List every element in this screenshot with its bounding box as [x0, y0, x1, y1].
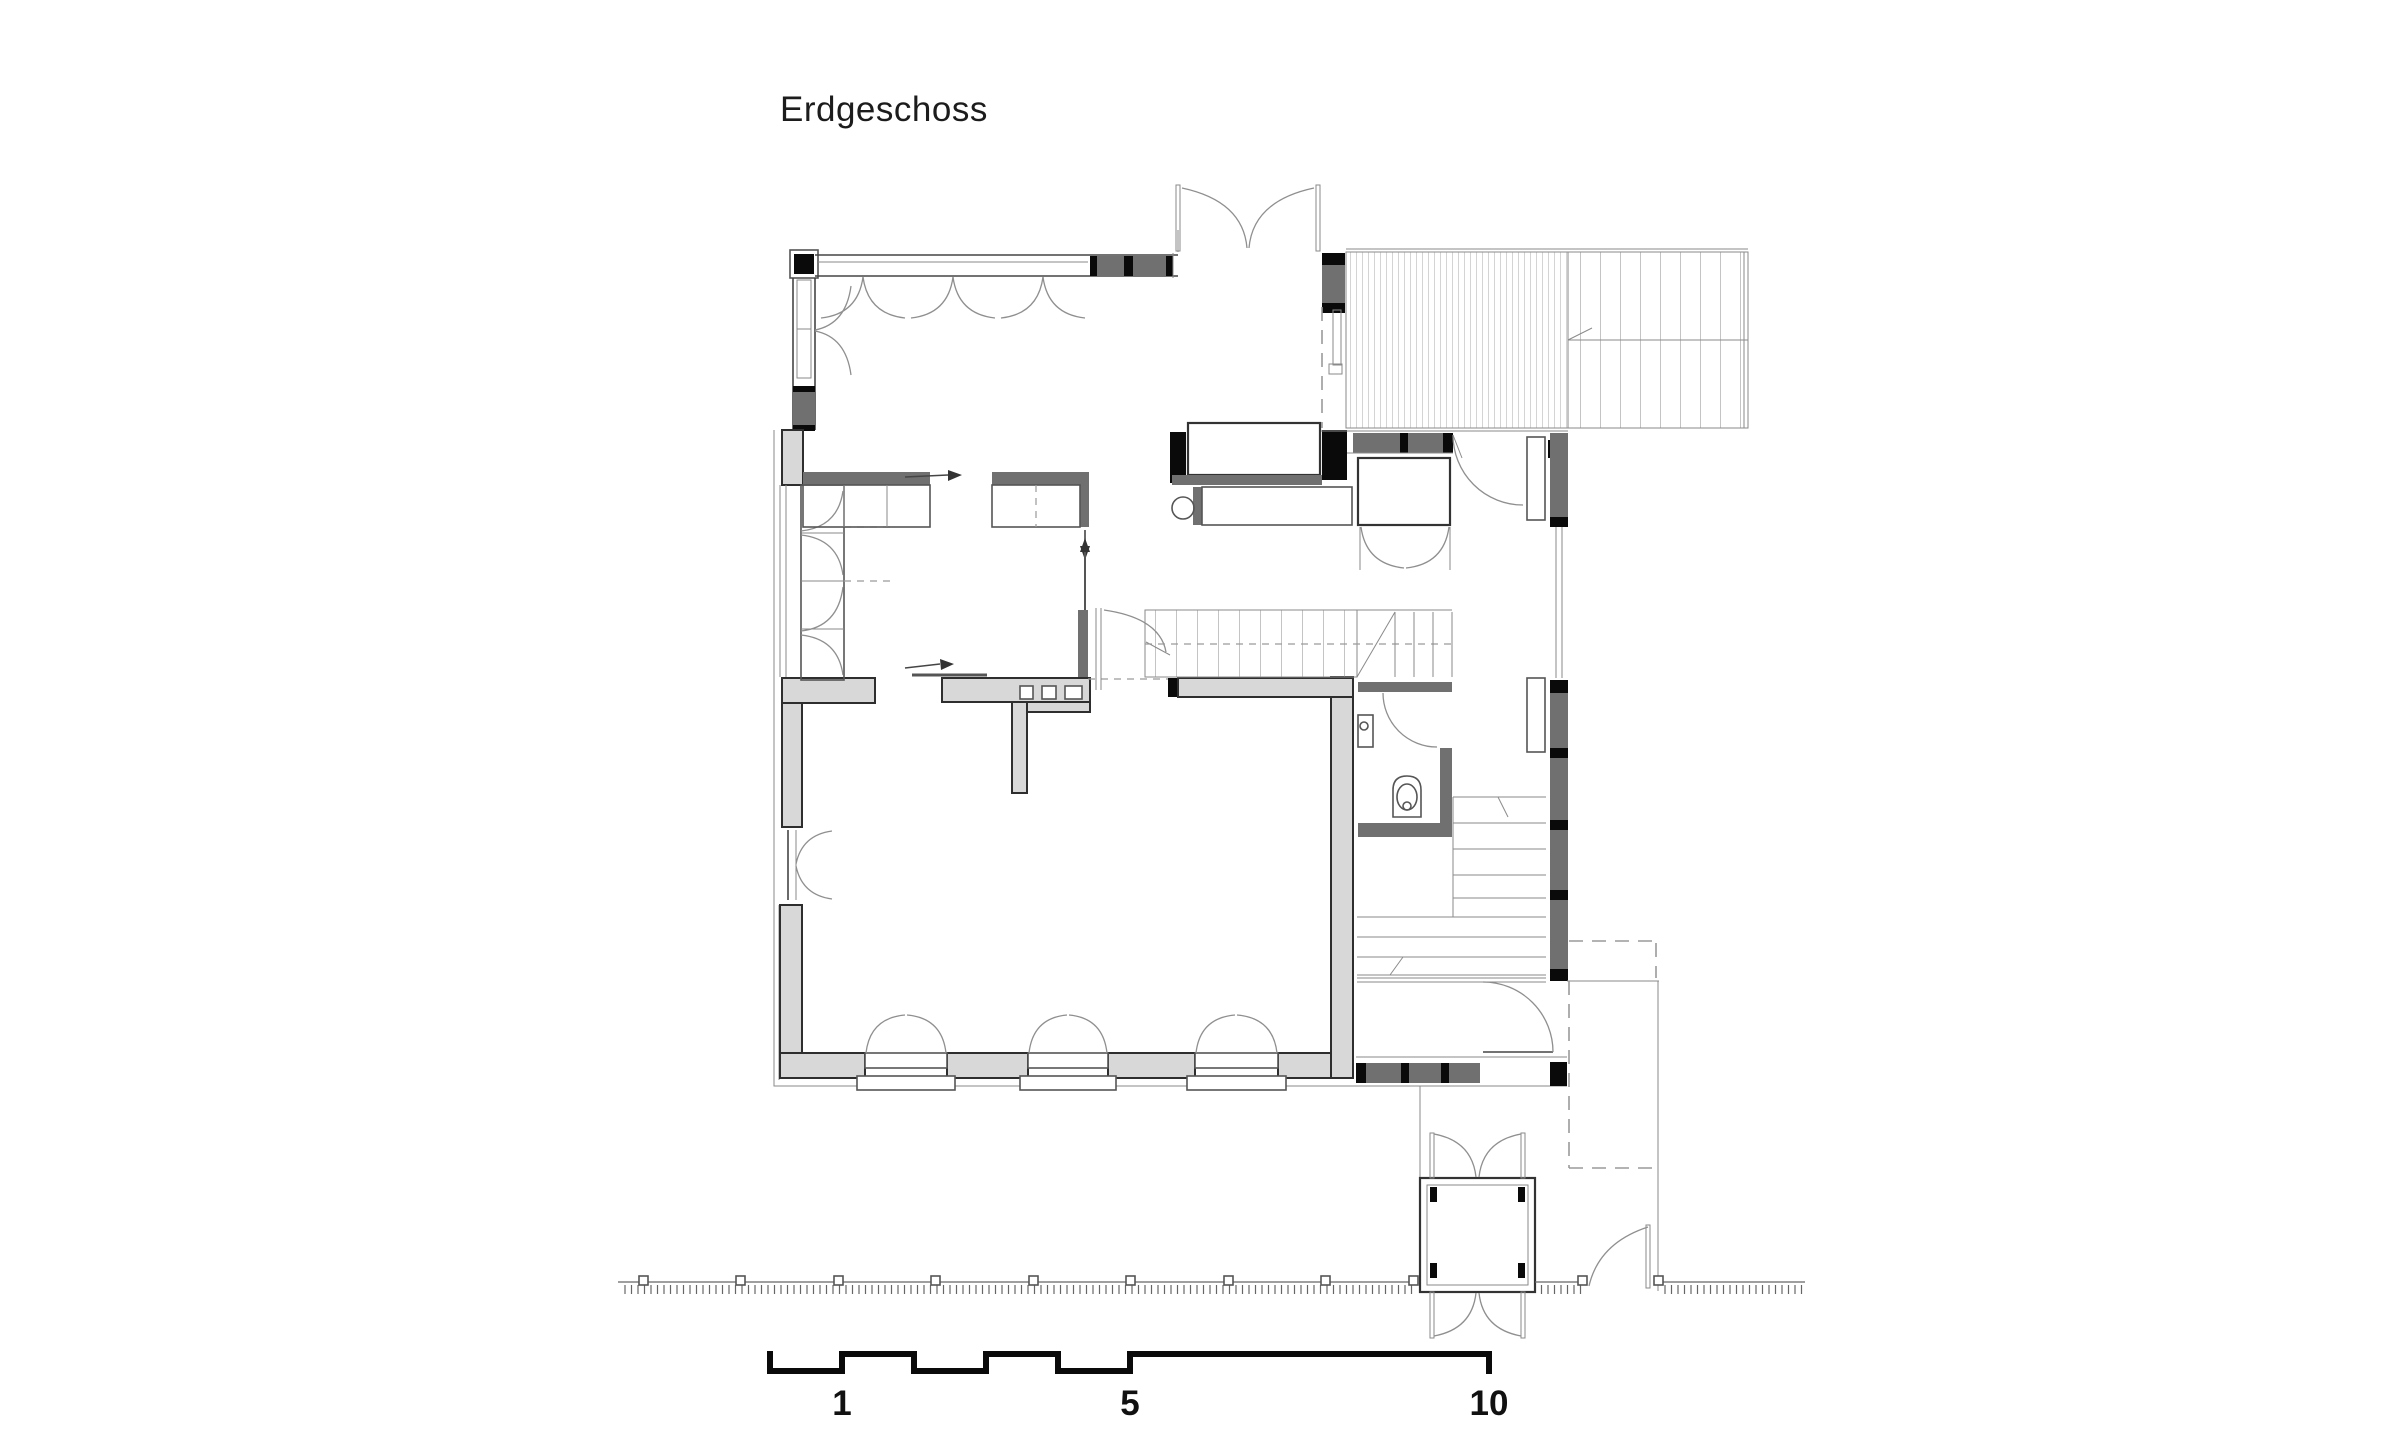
- fence-line: [618, 1225, 1805, 1294]
- kitchen-counter: [803, 470, 962, 527]
- south-windows-living: [857, 1015, 1286, 1090]
- kitchen-island: [992, 472, 1090, 560]
- north-wall-glazing: [815, 253, 1178, 318]
- wc-room: [1358, 682, 1452, 837]
- scale-label-5: 5: [1120, 1384, 1139, 1424]
- wing-east-wall: [1550, 433, 1568, 981]
- west-window-living: [788, 830, 832, 900]
- wing-south-wall: [1356, 982, 1567, 1086]
- hall-wardrobe: [1358, 458, 1450, 570]
- wc-toilet-icon: [1393, 776, 1421, 817]
- scale-label-10: 10: [1470, 1384, 1509, 1424]
- north-double-door: [1176, 185, 1320, 252]
- west-closet-column: [780, 485, 890, 680]
- gate-door-arc: [1589, 1225, 1650, 1288]
- dashed-canopy-outline: [1567, 941, 1659, 1291]
- floor-plan-page: Erdgeschoss: [0, 0, 2400, 1440]
- scale-bar: [770, 1351, 1489, 1374]
- exterior-stairs: [1568, 252, 1748, 428]
- north-wall-pier: [1322, 253, 1345, 428]
- wc-basin-icon: [1358, 715, 1373, 747]
- sliding-door-horizontal: [905, 659, 987, 675]
- hall-cupboards: [1527, 437, 1545, 752]
- garden-shed: [1420, 1133, 1535, 1338]
- scale-label-1: 1: [832, 1384, 851, 1424]
- floor-plan-drawing: [0, 0, 2400, 1440]
- interior-stairs-main: [1145, 610, 1452, 677]
- partition-wall-glassblocks: [942, 678, 1090, 793]
- west-wall-upper: [790, 250, 851, 431]
